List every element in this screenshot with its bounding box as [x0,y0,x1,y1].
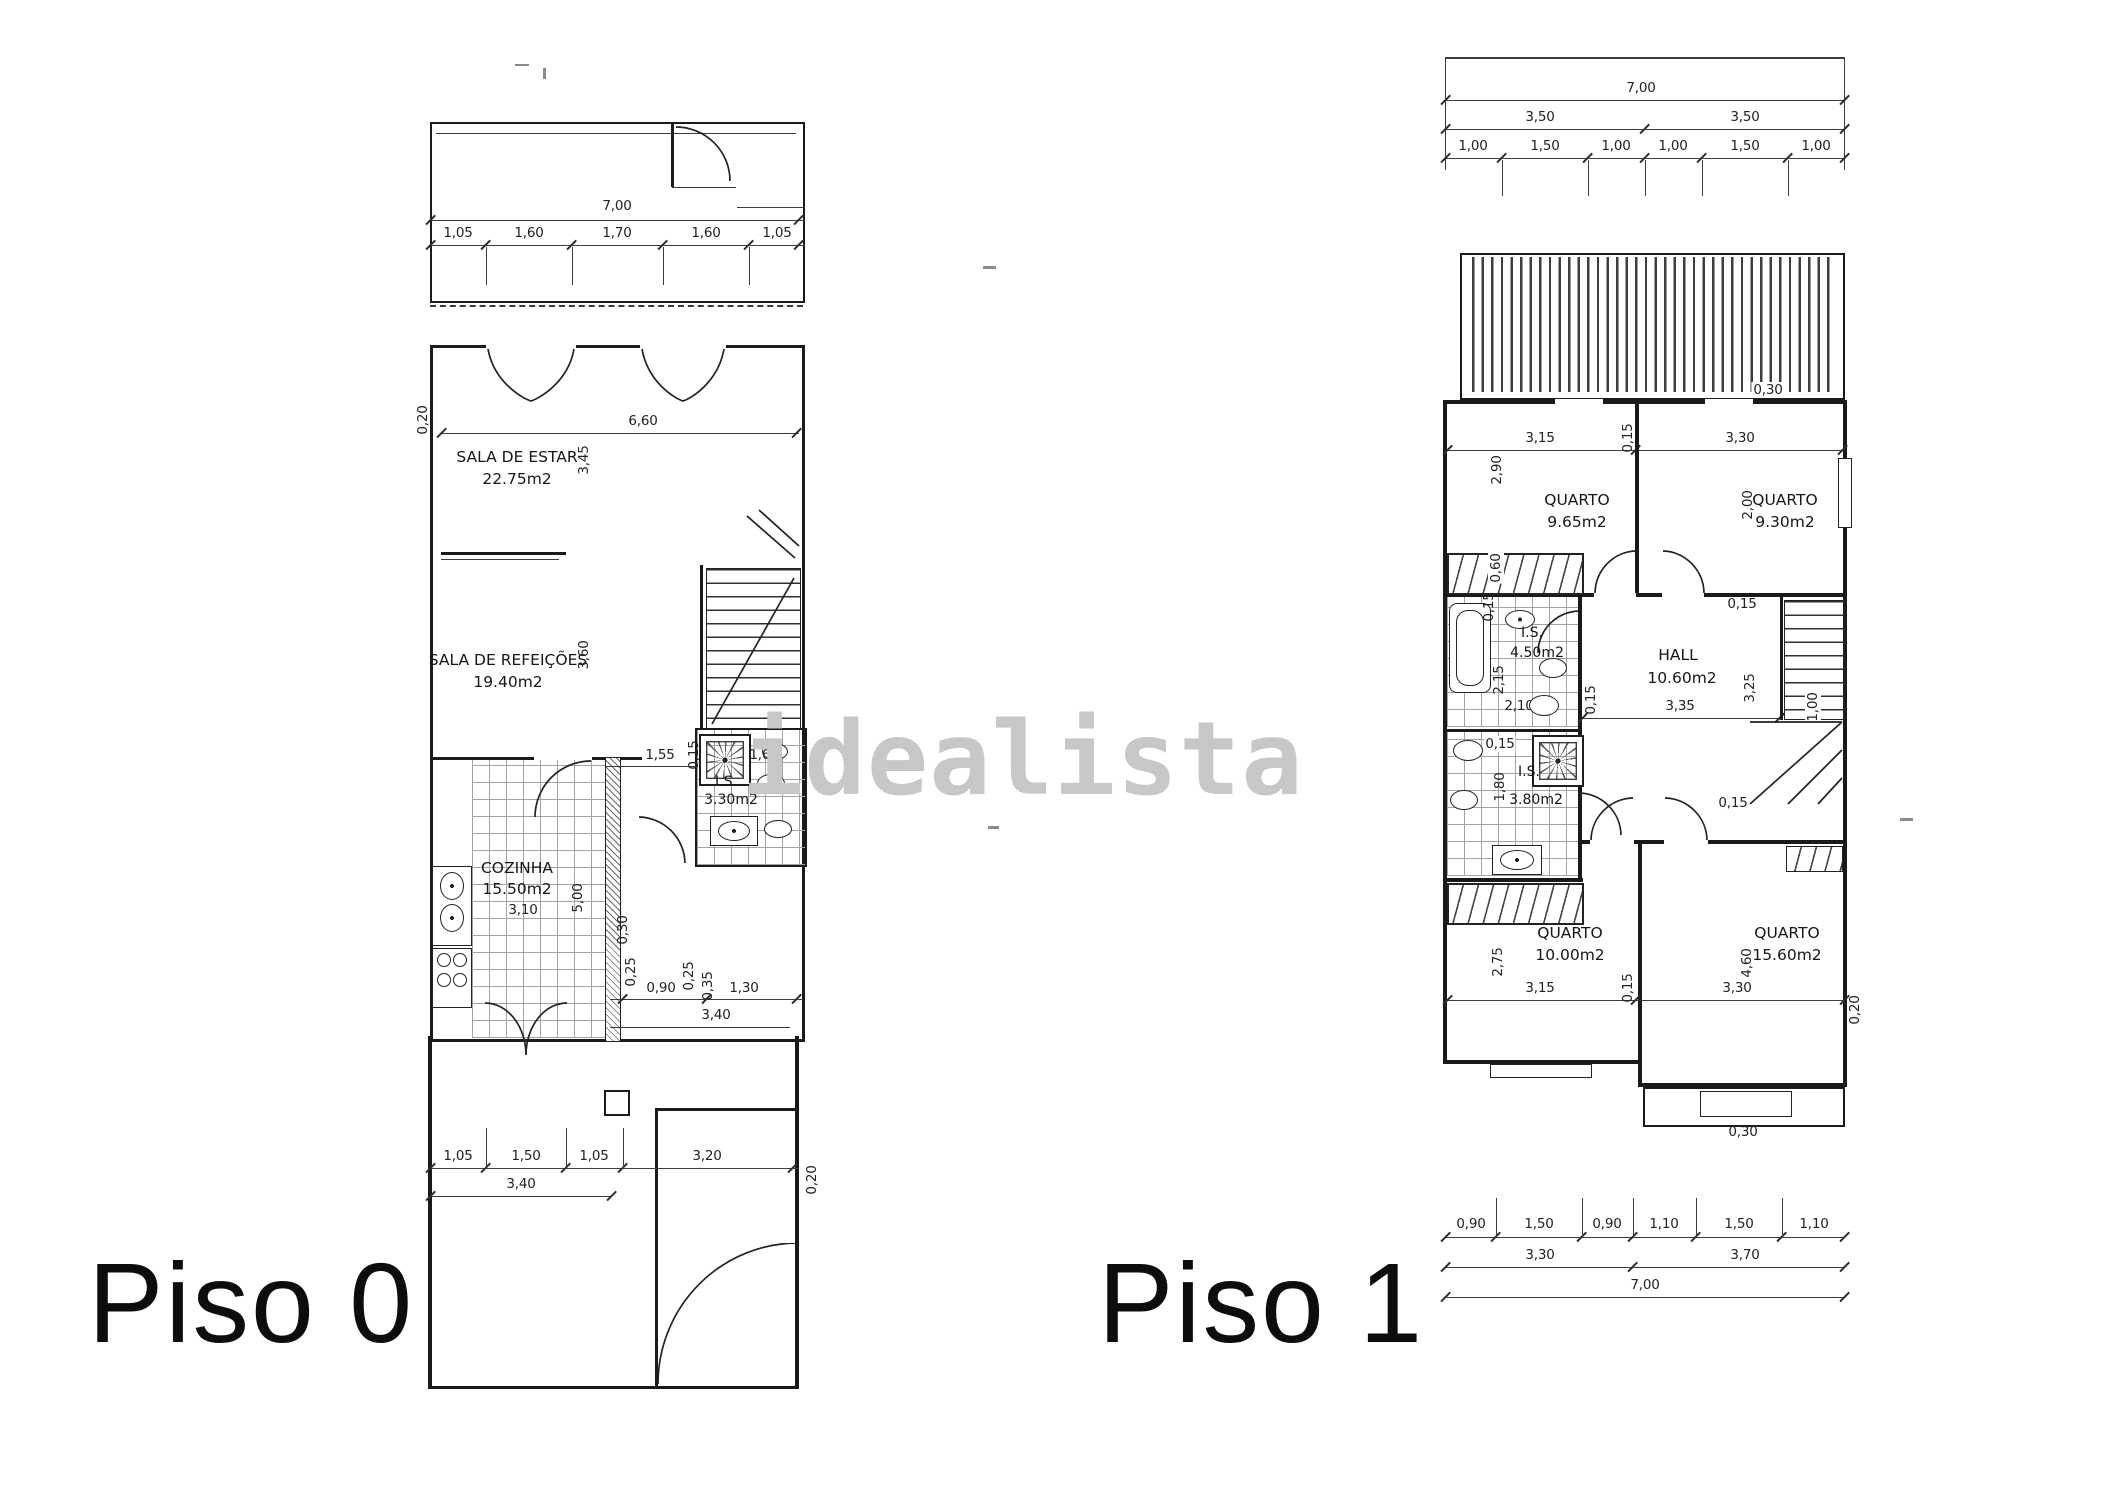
balcony-door-opening [1555,399,1603,405]
dim-line-bottom-right [657,1168,799,1169]
bidet [764,820,792,838]
dim-label: 0,15 [1484,736,1515,752]
dim-label: 0,25 [681,961,697,990]
witness-line [1645,160,1646,196]
dim-label: 4,60 [1739,948,1755,977]
room-area-q3: 10.00m2 [1535,946,1604,964]
witness-line [1633,1198,1634,1237]
room-area-q1: 9.65m2 [1547,513,1606,531]
dim-label: 1,30 [729,980,758,996]
dim-box-top [1445,57,1845,59]
interior-step-line [441,559,559,560]
gate-arc [658,1243,798,1386]
dim-label: 1,50 [511,1148,540,1164]
print-mark [515,64,529,66]
dim-label: 0,90 [646,980,675,996]
dim-box-side [1844,57,1845,170]
sink-bowl [440,872,464,900]
dim-line-bottom-halves [1445,1267,1845,1268]
witness-line [1496,1198,1497,1237]
witness-line [486,1128,487,1168]
terrace-inner-wall [436,133,796,134]
porch-wall-line [672,187,736,188]
dim-label: 1,80 [1492,772,1508,801]
dim-label: 3,30 [1725,430,1754,446]
room-label-is0: I.S. [715,774,737,790]
dim-label: 0,15 [1717,795,1748,811]
witness-line [623,1128,624,1168]
dim-label: 0,15 [1620,973,1636,1002]
room-area-hall: 10.60m2 [1647,669,1716,687]
dim-label: 1,60 [691,225,720,241]
patio-wall-bottom [428,1386,799,1389]
dim-label: 1,50 [1730,138,1759,154]
dim-label: 7,00 [602,198,631,214]
vanity-basin [1500,850,1534,870]
dim-label: 0,90 [1592,1216,1621,1232]
dim-line-bottom-segments [1445,1237,1845,1238]
witness-line [486,247,487,285]
witness-line [1502,160,1503,196]
dim-label: 0,30 [1751,382,1784,398]
bidet [1450,790,1478,810]
bathroom-door-arc [638,816,686,864]
dim-label: 0,20 [1847,995,1863,1024]
dim-label: 3,40 [701,1007,730,1023]
floor1-title: Piso 1 [1098,1238,1424,1368]
toilet [1539,658,1567,678]
dim-label: 7,00 [1626,80,1655,96]
room-label-q4: QUARTO [1754,924,1819,942]
dim-label: 2,75 [1490,947,1506,976]
witness-line [1588,160,1589,196]
vanity-basin [718,821,750,841]
dim-line-inner-width [441,433,799,434]
dim-label: 0,15 [1620,423,1636,452]
dim-label: 2,90 [1489,455,1505,484]
shelf [1786,846,1843,872]
dim-label: 0,15 [1583,685,1599,714]
room-label-q2: QUARTO [1752,491,1817,509]
stair-winders [1748,720,1844,806]
room-area-q2: 9.30m2 [1755,513,1814,531]
dim-line [610,1027,790,1028]
dim-line [605,766,697,767]
dim-label: 1,05 [762,225,791,241]
porch-step-line [737,207,803,208]
curtain-door [640,347,726,403]
dim-label: 0,30 [615,915,631,944]
bedroom-door-arc [1662,550,1705,594]
dim-label: 1,00 [1805,691,1821,722]
dim-label: 1,50 [1530,138,1559,154]
dim-label: 1,70 [602,225,631,241]
dim-label: 3,50 [1730,109,1759,125]
dim-label: 0,60 [1488,552,1504,583]
dim-label: 5,00 [570,883,586,912]
witness-line [1582,1198,1583,1237]
dim-label: 3,70 [1730,1247,1759,1263]
dim-label: 0,30 [1728,1124,1757,1140]
dim-label: 3,60 [576,640,592,669]
bedroom-divider-wall [1638,844,1642,1085]
dim-label: 1,60 [514,225,543,241]
dim-label: 1,00 [1658,138,1687,154]
dim-label: 1,00 [1458,138,1487,154]
stair-wall [1780,597,1783,720]
room-label-is2: I.S. [1518,764,1540,780]
dim-label: 0,15 [1727,596,1756,612]
dim-line-upper [1447,450,1843,451]
print-mark [983,266,996,269]
dim-label: 3,15 [1525,980,1554,996]
porch-door-arc [675,126,731,182]
dim-label: 3,50 [1525,109,1554,125]
double-door-arcs [483,1001,569,1057]
wardrobe [1447,553,1584,595]
kitchen-door-arc [534,760,592,818]
dim-label: 6,60 [628,413,657,429]
dim-label: 1,05 [443,225,472,241]
chimney-diagonal [745,508,801,564]
dim-label: 3,30 [1525,1247,1554,1263]
dim-label: 1,55 [645,747,674,763]
dim-label: 1,10 [1649,1216,1678,1232]
floor0-title: Piso 0 [88,1238,414,1368]
witness-line [663,247,664,285]
dim-label: 3,35 [1665,698,1694,714]
burner [437,953,451,967]
room-label-sala-estar: SALA DE ESTAR [456,448,577,466]
porch-wall [671,124,674,187]
dim-label: 0,90 [1456,1216,1485,1232]
dim-label: 2,15 [1491,665,1507,694]
property-dashed-line [430,305,803,307]
witness-line [572,247,573,285]
dim-line-total [430,220,805,221]
dim-label: 3,45 [576,445,592,474]
bathtub-inner [1456,610,1484,686]
balcony-door-opening [1705,399,1753,405]
floorplan-page: { "watermark": { "text": "idealista" }, … [0,0,2114,1510]
room-label-cozinha: COZINHA [481,859,553,877]
witness-line [1788,160,1789,196]
print-mark [543,68,546,79]
dim-label: 0,25 [623,957,639,986]
dim-label: 1,50 [1524,1216,1553,1232]
bedroom-door-arc [1594,550,1637,594]
interior-step-line [441,552,566,555]
railing [1490,1064,1592,1078]
bedroom-door-arc [1590,797,1634,841]
dim-line-lower [1447,1000,1845,1001]
room-area-q4: 15.60m2 [1752,946,1821,964]
dim-label: 0,20 [415,405,431,434]
bedroom-door-arc [1664,797,1708,841]
toilet [1453,740,1483,761]
dim-label: 3,20 [692,1148,721,1164]
dim-box-side [1445,57,1446,170]
dim-label: 1,10 [1799,1216,1828,1232]
witness-line [1702,160,1703,196]
room-area-refeicoes: 19.40m2 [473,673,542,691]
room-area-is1: 4.50m2 [1510,645,1564,661]
dim-label: 3,40 [506,1176,535,1192]
print-mark [1900,818,1913,821]
house-wall-top [1443,400,1847,404]
dim-label: 0,20 [804,1165,820,1194]
dim-label: 1,05 [579,1148,608,1164]
room-label-refeicoes: SALA DE REFEIÇÕES [429,651,587,669]
witness-line [566,1128,567,1168]
sink-bowl [440,904,464,932]
room-area-is2: 3.80m2 [1509,792,1563,808]
dim-line-bottom-total [1445,1297,1845,1298]
room-label-q3: QUARTO [1537,924,1602,942]
burner [453,953,467,967]
wardrobe [1447,883,1584,925]
dim-label: 0,15 [1481,592,1497,621]
dim-label: 3,30 [1722,980,1751,996]
dim-label: 3,15 [1525,430,1554,446]
window [1838,458,1852,528]
dim-label: 0,15 [686,740,702,769]
dim-label: 3,10 [508,902,537,918]
dim-label: 1,00 [1801,138,1830,154]
dim-label: 1,05 [443,1148,472,1164]
room-label-q1: QUARTO [1544,491,1609,509]
room-label-hall: HALL [1658,646,1698,664]
room-area-cozinha: 15.50m2 [482,880,551,898]
witness-line [749,247,750,285]
lower-wall-left [1443,878,1583,882]
dim-label: 1,50 [1724,1216,1753,1232]
dim-label: 7,00 [1630,1277,1659,1293]
dim-label: 1,00 [1601,138,1630,154]
dim-line-bottom-sub [430,1196,612,1197]
print-mark [988,826,999,829]
patio-wall-left [428,1036,432,1388]
dim-label: 3,25 [1742,673,1758,702]
room-area-sala-estar: 22.75m2 [482,470,551,488]
rear-balcony-step [1700,1091,1792,1117]
dim-line-total-top [1445,100,1845,101]
room-label-is1: I.S. [1521,625,1543,641]
witness-line [1782,1198,1783,1237]
toilet-bowl [1529,695,1559,716]
patio-inner-wall [655,1108,798,1111]
stair-wall [700,565,703,730]
idealista-watermark: idealista [742,700,1304,819]
burner [453,973,467,987]
curtain-door [486,347,576,403]
balcony-deck-boards [1472,257,1837,392]
witness-line [1696,1198,1697,1237]
post [604,1090,630,1116]
burner [437,973,451,987]
